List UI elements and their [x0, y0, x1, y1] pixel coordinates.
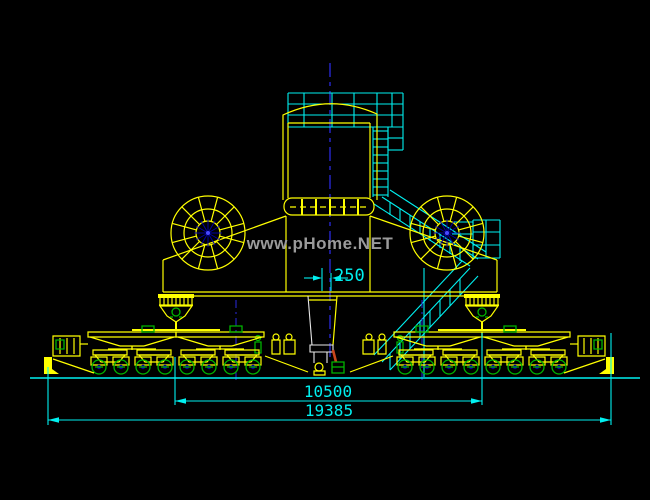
- center-leg: [308, 296, 344, 375]
- rail-buffer-right: [564, 357, 614, 374]
- cad-viewport: 250 10500 19385 www.pHome.NET: [0, 0, 650, 500]
- cable-drum-left: [171, 196, 245, 270]
- dimension-center-offset: 250: [304, 266, 365, 291]
- cad-drawing-canvas: 250 10500 19385 www.pHome.NET: [0, 0, 650, 500]
- dim-label-19385: 19385: [305, 401, 353, 420]
- handrail-grid: [288, 93, 403, 150]
- slew-turntable: [284, 198, 374, 215]
- watermark-text: www.pHome.NET: [246, 234, 394, 253]
- dim-label-250: 250: [334, 266, 365, 286]
- dimension-bogie-span: 10500: [175, 333, 482, 405]
- dim-label-10500: 10500: [304, 382, 352, 401]
- ladder: [373, 127, 388, 197]
- rail-buffer-left: [44, 357, 94, 374]
